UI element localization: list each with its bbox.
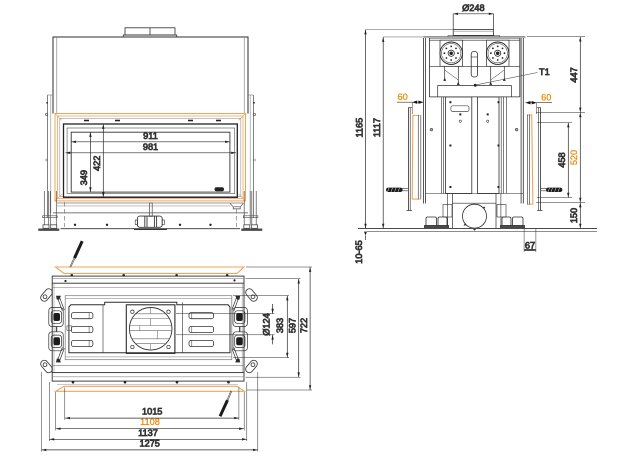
svg-text:Ø124: Ø124 [262, 313, 272, 335]
svg-text:911: 911 [143, 131, 158, 141]
svg-text:520: 520 [569, 150, 579, 165]
svg-text:1117: 1117 [372, 118, 382, 137]
svg-text:383: 383 [275, 318, 285, 333]
svg-text:1137: 1137 [138, 428, 158, 438]
svg-text:67: 67 [525, 241, 535, 251]
svg-text:722: 722 [299, 318, 309, 333]
svg-text:1165: 1165 [354, 118, 364, 138]
svg-text:Ø248: Ø248 [462, 3, 484, 13]
svg-text:60: 60 [541, 93, 551, 103]
svg-text:597: 597 [287, 318, 297, 333]
svg-text:150: 150 [569, 208, 579, 223]
svg-text:1275: 1275 [139, 438, 159, 448]
svg-text:T1: T1 [539, 67, 550, 77]
svg-text:1015: 1015 [142, 407, 162, 417]
svg-text:458: 458 [557, 152, 567, 167]
svg-text:447: 447 [569, 67, 579, 82]
svg-text:422: 422 [92, 156, 102, 171]
svg-text:10-65: 10-65 [354, 240, 364, 264]
svg-text:1108: 1108 [140, 417, 160, 427]
svg-text:60: 60 [397, 92, 407, 102]
svg-text:349: 349 [79, 170, 89, 185]
svg-text:981: 981 [143, 142, 158, 152]
